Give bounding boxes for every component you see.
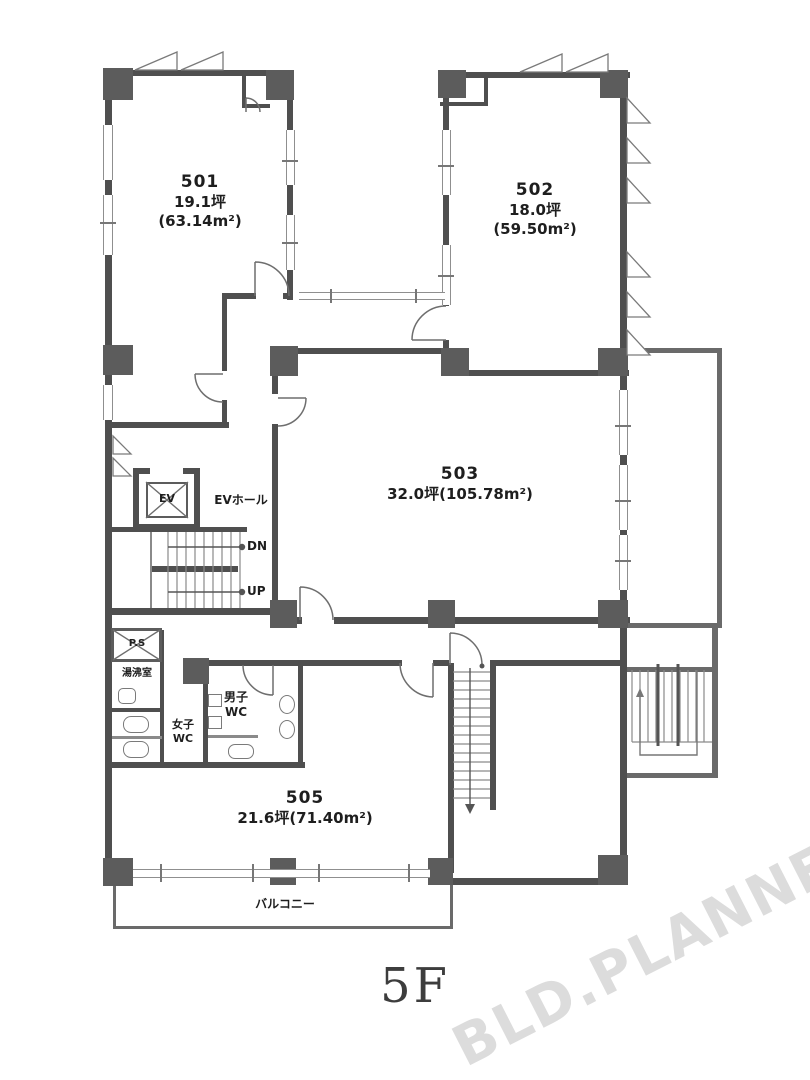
mens-wc-label: 男子 WC (213, 690, 259, 720)
room-area-tsubo: 18.0坪 (450, 201, 620, 220)
womens-wc-line2: WC (163, 732, 203, 746)
room-area-m2: (59.50m²) (450, 220, 620, 239)
mens-wc-line1: 男子 (213, 690, 259, 705)
floor-number-label: 5F (340, 958, 490, 1014)
stair-dn-label: DN (247, 539, 279, 554)
room-number: 503 (320, 464, 600, 485)
floor-plan-5f: 501 19.1坪 (63.14m²) 502 18.0坪 (59.50m²) … (0, 0, 810, 1080)
stair-treads (453, 672, 490, 798)
door-hinge-dot (480, 664, 485, 669)
room-number: 502 (450, 180, 620, 201)
womens-wc-line1: 女子 (163, 718, 203, 732)
room-area-line: 32.0坪(105.78m²) (320, 485, 600, 504)
stair-up-label: UP (247, 584, 279, 599)
room-label-502: 502 18.0坪 (59.50m²) (450, 180, 620, 239)
ev-hall-label: EVホール (205, 493, 277, 508)
room-area-line: 21.6坪(71.40m²) (185, 809, 425, 828)
mens-wc-line2: WC (213, 705, 259, 720)
kitchenette-label: 湯沸室 (112, 668, 162, 681)
stair-treads (168, 532, 240, 608)
room-label-505: 505 21.6坪(71.40m²) (185, 788, 425, 828)
stair-direction-arrows (168, 545, 245, 595)
stair-rails (658, 664, 678, 746)
room-number: 505 (185, 788, 425, 809)
casement-window-icon (113, 52, 650, 476)
room-number: 501 (120, 172, 280, 193)
room-label-503: 503 32.0坪(105.78m²) (320, 464, 600, 504)
balcony-label: バルコニー (235, 897, 335, 912)
stair-treads (632, 670, 712, 742)
elevator-label: EV (147, 492, 187, 506)
ps-label: P.S (115, 638, 159, 651)
room-area-m2: (63.14m²) (120, 212, 280, 231)
room-label-501: 501 19.1坪 (63.14m²) (120, 172, 280, 231)
room-area-tsubo: 19.1坪 (120, 193, 280, 212)
womens-wc-label: 女子 WC (163, 718, 203, 746)
